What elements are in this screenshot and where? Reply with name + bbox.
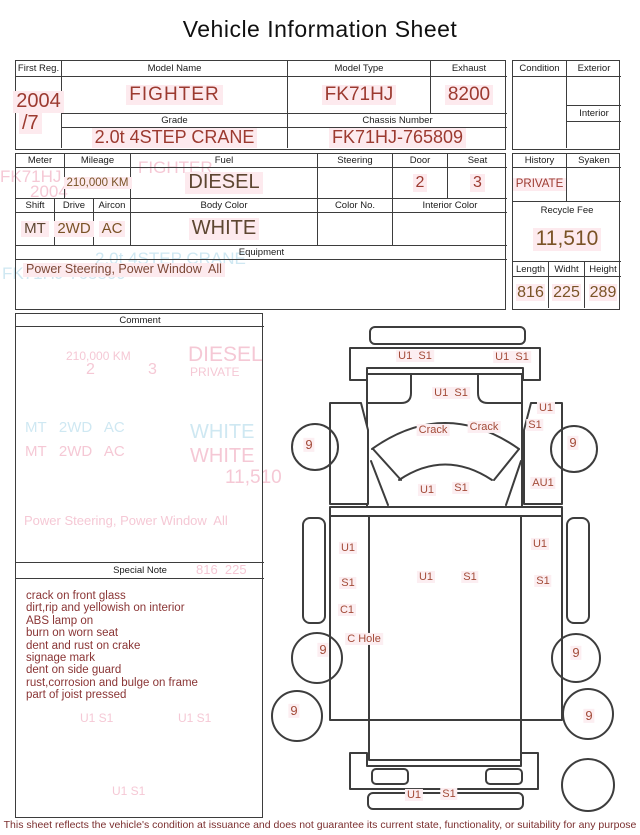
special-note-line: signage mark [26, 652, 260, 664]
diagram-label: S1 [461, 571, 478, 583]
diagram-label: S1 [534, 575, 551, 587]
special-note-list: crack on front glassdirt,rip and yellowi… [16, 579, 264, 817]
door-label: Door [393, 154, 448, 168]
diagram-label: U1 [417, 571, 435, 583]
diagram-label: U1 S1 [396, 350, 434, 362]
height-value: 289 [585, 277, 621, 308]
diagram-label: Crack [417, 424, 450, 436]
meter-label: Meter [16, 154, 65, 168]
diagram-label: AU1 [530, 477, 555, 489]
comment-box: Comment Special Note crack on front glas… [15, 313, 263, 818]
condition-label: Condition [513, 61, 567, 77]
interior-color-value [393, 213, 507, 246]
body-color-label: Body Color [131, 199, 318, 213]
diagram-label: U1 [531, 538, 549, 550]
front-bumper [370, 327, 525, 344]
width-value: 225 [549, 277, 585, 308]
cab-step-strip [330, 507, 562, 516]
side-guard-right [567, 518, 589, 623]
fuel-value: DIESEL [131, 168, 318, 199]
mileage-value: 210,000 KM [65, 168, 131, 199]
special-note-line: dent on side guard [26, 664, 260, 676]
model-name-label: Model Name [62, 61, 288, 77]
special-note-line: rust,corrosion and bulge on frame [26, 677, 260, 689]
fuel-label: Fuel [131, 154, 318, 168]
diagram-label: C1 [338, 604, 356, 616]
recycle-fee-value: 11,510 [513, 218, 621, 262]
comment-value [16, 327, 264, 562]
diagram-label: U1 [339, 542, 357, 554]
grade-value: 2.0t 4STEP CRANE [62, 128, 288, 148]
bed-outline [330, 516, 562, 720]
body-color-value: WHITE [131, 213, 318, 246]
exterior-value [567, 77, 621, 106]
recycle-fee-label: Recycle Fee [513, 202, 621, 218]
diagram-label: 9 [303, 438, 314, 452]
length-label: Length [513, 262, 549, 277]
disclaimer: This sheet reflects the vehicle's condit… [0, 819, 640, 831]
diagram-label: Crack [468, 421, 501, 433]
exterior-label: Exterior [567, 61, 621, 77]
diagram-label: U1 [405, 789, 423, 801]
model-type-value: FK71HJ [288, 77, 431, 114]
seat-value: 3 [448, 168, 507, 199]
history-value: PRIVATE [513, 168, 567, 202]
equipment-label: Equipment [16, 246, 507, 260]
diagram-label: S1 [440, 788, 457, 800]
aircon-value: AC [94, 213, 131, 246]
door-value: 2 [393, 168, 448, 199]
first-reg-label: First Reg. [16, 61, 62, 77]
steering-label: Steering [318, 154, 393, 168]
vehicle-information-sheet: FK71HJ2004FIGHTER82002.0t 4STEP CRANEFK7… [0, 0, 640, 835]
width-label: Widht [549, 262, 585, 277]
special-note-line: crack on front glass [26, 590, 260, 602]
exhaust-value: 8200 [431, 77, 507, 114]
diagram-label: U1 [537, 402, 555, 414]
aircon-label: Aircon [94, 199, 131, 213]
diagram-label: 9 [570, 646, 581, 660]
special-note-line: burn on worn seat [26, 627, 260, 639]
interior-value [567, 122, 621, 148]
diagram-label: U1 S1 [493, 351, 531, 363]
interior-color-label: Interior Color [393, 199, 507, 213]
spare-wheel [562, 759, 614, 811]
color-no-value [318, 213, 393, 246]
height-label: Height [585, 262, 621, 277]
diagram-label: 9 [288, 704, 299, 718]
diagram-label: S1 [339, 577, 356, 589]
model-name-value: FIGHTER [62, 77, 288, 114]
diagram-label: S1 [452, 482, 469, 494]
condition-value [513, 77, 567, 148]
diagram-label: 9 [317, 643, 328, 657]
diagram-label: 9 [583, 709, 594, 723]
length-value: 816 [513, 277, 549, 308]
spec-table: Meter Mileage 210,000 KM Fuel DIESEL Ste… [15, 153, 506, 310]
special-note-line: dirt,rip and yellowish on interior [26, 602, 260, 614]
model-type-label: Model Type [288, 61, 431, 77]
special-note-label: Special Note [16, 562, 264, 579]
interior-label: Interior [567, 106, 621, 122]
diagram-label: U1 [418, 484, 436, 496]
first-reg-month: /7 [19, 113, 42, 135]
steering-value [318, 168, 393, 199]
equipment-value: Power Steering, Power Window All [16, 260, 507, 308]
chassis-number-label: Chassis Number [288, 114, 507, 128]
seat-label: Seat [448, 154, 507, 168]
special-note-line: dent and rust on crake [26, 640, 260, 652]
diagram-label: 9 [567, 436, 578, 450]
shift-label: Shift [16, 199, 55, 213]
first-reg-value: 2004 /7 [16, 77, 62, 148]
diagram-label: C Hole [345, 633, 383, 645]
fender-left [330, 403, 368, 504]
side-guard-left [303, 518, 325, 623]
mileage-label: Mileage [65, 154, 131, 168]
shift-value: MT [16, 213, 55, 246]
grade-label: Grade [62, 114, 288, 128]
drive-label: Drive [55, 199, 94, 213]
chassis-number-value: FK71HJ-765809 [288, 128, 507, 148]
syaken-value [567, 168, 621, 202]
meter-value [16, 168, 65, 199]
color-no-label: Color No. [318, 199, 393, 213]
comment-label: Comment [16, 314, 264, 327]
history-box: History PRIVATE Syaken Recycle Fee 11,51… [512, 153, 620, 310]
exhaust-label: Exhaust [431, 61, 507, 77]
page-title: Vehicle Information Sheet [0, 16, 640, 43]
special-note-line: part of joist pressed [26, 689, 260, 701]
drive-value: 2WD [55, 213, 94, 246]
diagram-label: S1 [526, 419, 543, 431]
first-reg-year: 2004 [13, 91, 64, 113]
diagram-label: U1 S1 [432, 387, 470, 399]
condition-box: Condition Exterior Interior [512, 60, 620, 150]
syaken-label: Syaken [567, 154, 621, 168]
identity-table: First Reg. 2004 /7 Model Name FIGHTER Mo… [15, 60, 506, 150]
special-note-line: ABS lamp on [26, 615, 260, 627]
history-label: History [513, 154, 567, 168]
